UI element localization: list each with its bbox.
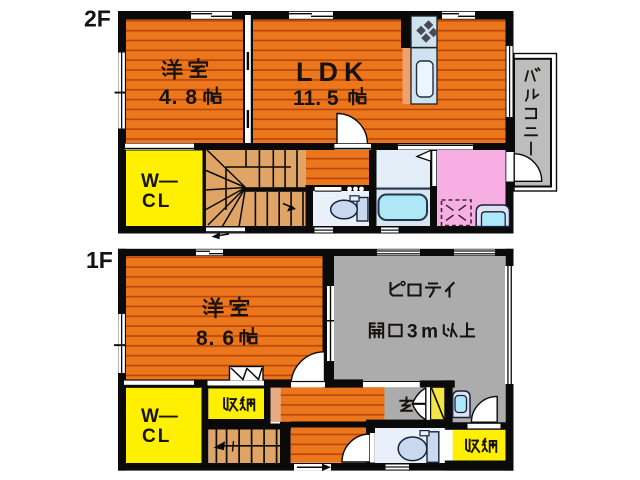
svg-text:3m: 3m [407, 322, 441, 343]
svg-text:CL: CL [142, 191, 171, 212]
svg-text:2F: 2F [84, 6, 111, 32]
svg-text:W—: W— [141, 406, 178, 427]
svg-text:LDK: LDK [296, 57, 370, 87]
svg-text:4. 8: 4. 8 [159, 86, 198, 109]
svg-text:8. 6: 8. 6 [196, 327, 235, 350]
svg-text:W—: W— [141, 171, 178, 192]
svg-text:CL: CL [142, 426, 171, 447]
svg-text:1F: 1F [86, 247, 113, 273]
svg-text:11. 5: 11. 5 [293, 87, 339, 110]
